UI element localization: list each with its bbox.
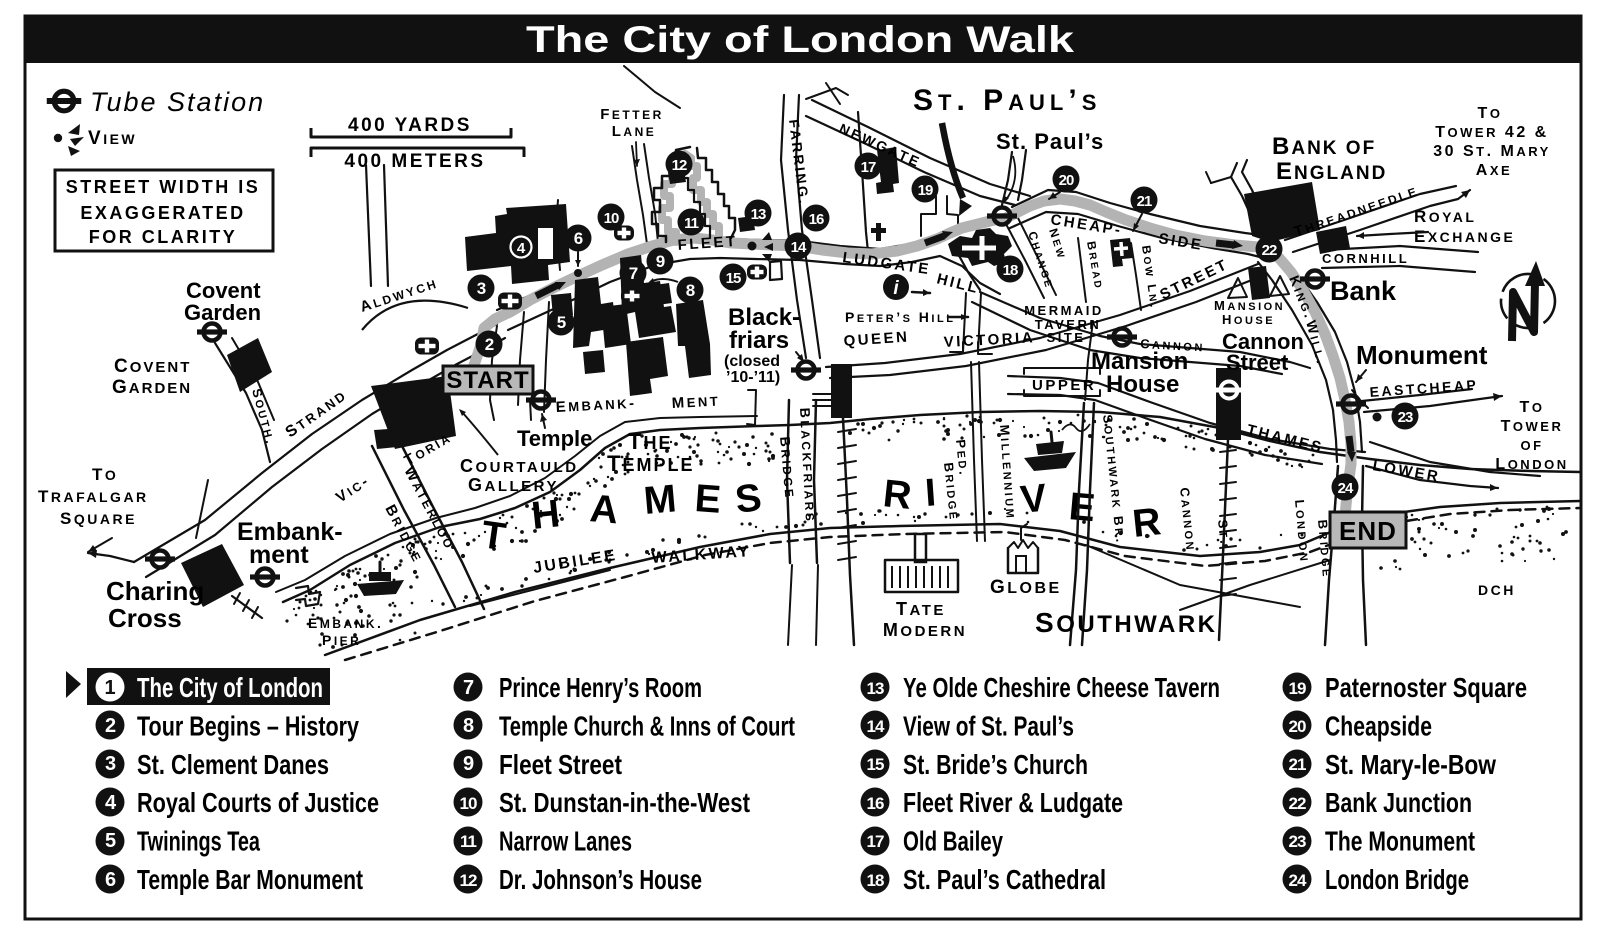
svg-text:14: 14 (791, 239, 807, 256)
svg-text:MERMAID: MERMAID (1024, 303, 1104, 318)
svg-text:24: 24 (1289, 871, 1307, 890)
svg-text:Tour Begins – History: Tour Begins – History (137, 710, 359, 741)
svg-text:GARDEN: GARDEN (112, 377, 192, 398)
svg-text:8: 8 (463, 715, 474, 737)
svg-text:EMBANK.: EMBANK. (308, 615, 383, 631)
svg-text:CORNHILL: CORNHILL (1322, 251, 1409, 266)
svg-text:View of St. Paul’s: View of St. Paul’s (903, 710, 1074, 741)
svg-text:Charing: Charing (106, 576, 204, 606)
svg-text:21: 21 (1289, 755, 1306, 774)
svg-text:22: 22 (1262, 242, 1277, 259)
svg-text:Dr. Johnson’s House: Dr. Johnson’s House (499, 864, 702, 895)
svg-text:R: R (1130, 500, 1163, 546)
svg-text:Temple Bar Monument: Temple Bar Monument (137, 864, 363, 895)
svg-text:The City of London: The City of London (137, 672, 323, 703)
svg-text:ROYAL: ROYAL (1414, 207, 1476, 226)
svg-text:Ye Olde Cheshire Cheese Tavern: Ye Olde Cheshire Cheese Tavern (903, 672, 1220, 703)
svg-text:A: A (588, 487, 620, 532)
svg-text:Paternoster Square: Paternoster Square (1325, 672, 1527, 703)
svg-text:THE: THE (628, 429, 672, 454)
svg-text:11: 11 (460, 832, 477, 851)
svg-text:Temple: Temple (517, 426, 592, 451)
svg-text:18: 18 (867, 871, 884, 890)
svg-text:Monument: Monument (1356, 340, 1488, 370)
svg-text:15: 15 (867, 755, 884, 774)
svg-text:23: 23 (1398, 409, 1413, 426)
svg-text:4: 4 (517, 240, 526, 257)
svg-text:E: E (693, 477, 722, 522)
svg-text:Tube Station: Tube Station (90, 87, 265, 117)
svg-text:8: 8 (686, 281, 695, 300)
svg-text:R: R (881, 472, 914, 518)
svg-text:START: START (446, 367, 529, 394)
svg-text:3: 3 (477, 279, 486, 298)
svg-text:FETTER: FETTER (600, 106, 664, 123)
svg-text:S: S (733, 476, 764, 522)
svg-text:17: 17 (867, 832, 884, 851)
svg-text:21: 21 (1137, 193, 1152, 210)
svg-text:Cross: Cross (108, 603, 182, 633)
svg-text:V: V (1018, 476, 1048, 521)
svg-text:24: 24 (1338, 480, 1354, 497)
svg-text:10: 10 (604, 210, 619, 227)
svg-text:END: END (1339, 516, 1397, 546)
svg-text:friars: friars (729, 327, 789, 354)
svg-text:London Bridge: London Bridge (1325, 864, 1469, 895)
svg-text:ment: ment (249, 541, 309, 569)
svg-text:5: 5 (105, 830, 116, 852)
svg-text:6: 6 (105, 869, 116, 891)
svg-text:MODERN: MODERN (883, 620, 967, 640)
svg-text:2: 2 (105, 715, 116, 737)
svg-text:MANSION: MANSION (1214, 298, 1285, 313)
svg-text:EXCHANGE: EXCHANGE (1414, 227, 1515, 246)
svg-text:(closed: (closed (724, 353, 780, 370)
svg-text:Prince Henry’s Room: Prince Henry’s Room (499, 672, 702, 703)
svg-text:11: 11 (684, 215, 699, 232)
svg-text:OF: OF (1520, 438, 1543, 453)
svg-text:St. Mary-le-Bow: St. Mary-le-Bow (1325, 749, 1496, 780)
svg-text:LANE: LANE (612, 123, 657, 140)
svg-text:E: E (1067, 485, 1097, 530)
svg-text:TRAFALGAR: TRAFALGAR (38, 487, 149, 506)
svg-text:Garden: Garden (184, 300, 261, 325)
svg-text:16: 16 (867, 794, 884, 813)
svg-text:St. Dunstan-in-the-West: St. Dunstan-in-the-West (499, 787, 750, 818)
svg-text:19: 19 (1289, 679, 1306, 698)
svg-text:Temple Church & Inns of Court: Temple Church & Inns of Court (499, 710, 795, 741)
svg-text:19: 19 (918, 182, 933, 199)
svg-text:TO: TO (1520, 399, 1545, 416)
svg-text:i: i (893, 278, 899, 299)
svg-text:Cheapside: Cheapside (1325, 710, 1432, 741)
svg-text:TOWER 42 &: TOWER 42 & (1435, 124, 1548, 141)
svg-text:The City of London Walk: The City of London Walk (526, 19, 1075, 60)
svg-text:H: H (529, 492, 562, 538)
svg-text:Narrow Lanes: Narrow Lanes (499, 826, 632, 857)
svg-text:Bank: Bank (1330, 276, 1397, 306)
svg-text:Twinings Tea: Twinings Tea (137, 826, 260, 857)
svg-text:STREET WIDTH IS: STREET WIDTH IS (66, 177, 261, 197)
svg-text:7: 7 (629, 264, 638, 283)
svg-text:ENGLAND: ENGLAND (1276, 158, 1387, 185)
svg-text:20: 20 (1059, 172, 1074, 189)
svg-text:GALLERY: GALLERY (468, 475, 559, 495)
svg-text:23: 23 (1289, 832, 1306, 851)
svg-text:2: 2 (485, 335, 494, 354)
svg-text:Royal Courts of Justice: Royal Courts of Justice (137, 787, 379, 818)
svg-text:COVENT: COVENT (114, 356, 191, 377)
svg-text:TATE: TATE (896, 599, 946, 619)
svg-text:Street: Street (1226, 350, 1289, 375)
svg-text:6: 6 (574, 229, 583, 248)
svg-text:Fleet Street: Fleet Street (499, 749, 622, 780)
svg-text:14: 14 (867, 717, 885, 736)
svg-text:13: 13 (867, 679, 884, 698)
svg-text:10: 10 (460, 794, 477, 813)
svg-text:SOUTHWARK: SOUTHWARK (1035, 607, 1218, 638)
svg-text:GLOBE: GLOBE (990, 577, 1062, 598)
svg-text:9: 9 (656, 252, 665, 271)
svg-text:VIEW: VIEW (88, 128, 137, 149)
svg-text:7: 7 (463, 677, 474, 699)
svg-text:House: House (1106, 371, 1179, 398)
svg-text:Fleet River & Ludgate: Fleet River & Ludgate (903, 787, 1123, 818)
svg-text:1: 1 (104, 677, 115, 699)
svg-text:18: 18 (1003, 262, 1018, 279)
svg-text:LONDON: LONDON (1495, 456, 1568, 473)
svg-text:HOUSE: HOUSE (1222, 312, 1275, 327)
svg-text:Bank Junction: Bank Junction (1325, 787, 1472, 818)
svg-text:PIER: PIER (322, 632, 361, 648)
svg-text:St. Paul’s Cathedral: St. Paul’s Cathedral (903, 864, 1106, 895)
svg-text:400 YARDS: 400 YARDS (348, 115, 472, 136)
svg-text:FOR CLARITY: FOR CLARITY (89, 227, 238, 247)
svg-text:SQUARE: SQUARE (60, 509, 137, 528)
svg-text:15: 15 (726, 270, 741, 287)
svg-text:5: 5 (557, 313, 566, 332)
svg-text:EXAGGERATED: EXAGGERATED (80, 203, 245, 223)
svg-text:17: 17 (861, 159, 876, 176)
svg-text:Old Bailey: Old Bailey (903, 826, 1003, 857)
svg-text:16: 16 (809, 211, 824, 228)
svg-text:St. Bride’s Church: St. Bride’s Church (903, 749, 1088, 780)
svg-text:12: 12 (460, 871, 477, 890)
svg-text:St. Paul’s: St. Paul’s (996, 129, 1104, 154)
svg-text:TOWER: TOWER (1501, 418, 1564, 435)
svg-text:SITE: SITE (1047, 330, 1086, 345)
svg-text:St. Clement Danes: St. Clement Danes (137, 749, 329, 780)
svg-text:AXE: AXE (1476, 162, 1512, 179)
svg-text:DCH: DCH (1478, 582, 1516, 598)
svg-text:TO: TO (92, 465, 118, 484)
svg-text:20: 20 (1289, 717, 1306, 736)
svg-text:M: M (642, 477, 678, 523)
svg-text:The Monument: The Monument (1325, 826, 1475, 857)
svg-text:COURTAULD: COURTAULD (460, 456, 579, 476)
svg-text:13: 13 (751, 206, 766, 223)
svg-text:12: 12 (672, 157, 687, 174)
svg-text:TEMPLE: TEMPLE (607, 451, 694, 476)
svg-text:9: 9 (463, 753, 474, 775)
svg-text:22: 22 (1289, 794, 1306, 813)
svg-text:UPPER: UPPER (1032, 377, 1096, 394)
svg-text:30 ST. MARY: 30 ST. MARY (1433, 143, 1551, 160)
svg-text:’10-’11): ’10-’11) (726, 369, 780, 386)
svg-text:3: 3 (105, 753, 116, 775)
svg-text:TO: TO (1478, 105, 1503, 122)
svg-text:BANK OF: BANK OF (1272, 133, 1376, 160)
